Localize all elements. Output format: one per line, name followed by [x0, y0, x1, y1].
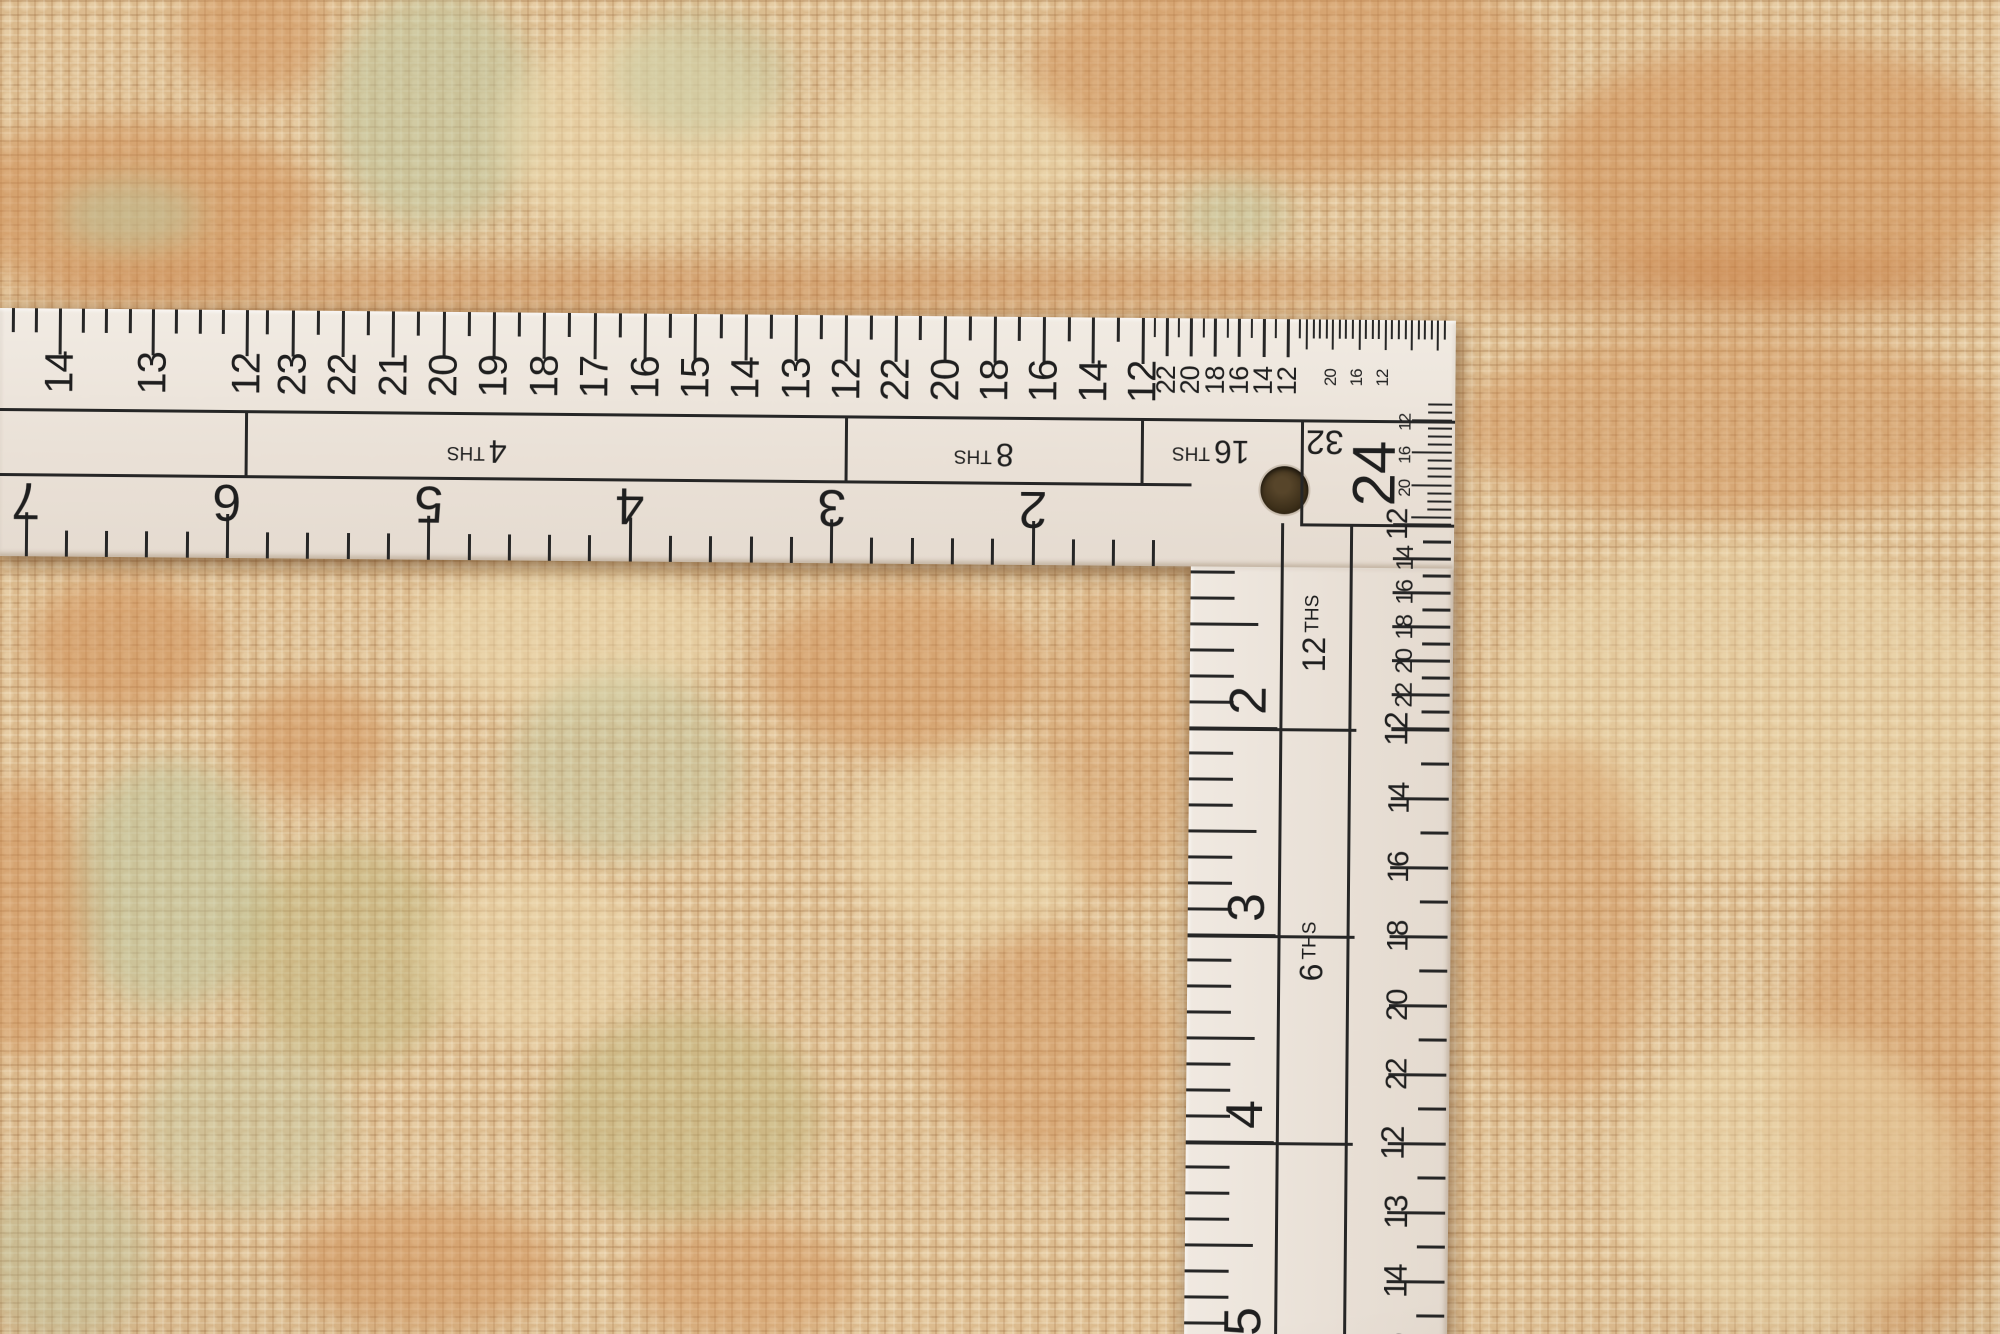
scale-number: 17: [574, 356, 614, 399]
scale-number: 20: [1322, 369, 1339, 386]
ruler-tick: [1412, 452, 1452, 454]
ruler-tick: [1428, 428, 1452, 430]
ruler-tick: [1428, 468, 1452, 470]
ruler-tick: [1352, 320, 1354, 339]
section-label-32nds: 32: [1306, 424, 1344, 458]
ruler-tick: [1185, 1218, 1229, 1221]
ruler-tick: [1262, 319, 1265, 357]
ruler-tick: [1072, 539, 1075, 565]
scale-number: 14: [1394, 546, 1418, 571]
ruler-tick: [1428, 403, 1452, 405]
scale-number: 16: [1384, 851, 1414, 883]
scale-number: 20: [423, 354, 463, 397]
scale-number: 20: [1393, 649, 1417, 674]
scale-number: 12: [1374, 370, 1391, 387]
ruler-tick: [1112, 540, 1115, 566]
ruler-tick: [1306, 319, 1308, 349]
ruler-tick: [316, 311, 319, 335]
ruler-tick: [568, 313, 571, 337]
ruler-tick: [1420, 900, 1448, 903]
ruler-tick: [1421, 762, 1449, 765]
ruler-tick: [11, 308, 14, 332]
ruler-tick: [1165, 318, 1168, 356]
ruler-tick: [1339, 320, 1341, 339]
scale-number: 22: [876, 358, 916, 401]
ruler-tick: [790, 537, 793, 563]
ruler-tick: [1190, 674, 1234, 677]
ruler-tick: [442, 312, 445, 358]
ruler-tick: [1186, 1062, 1230, 1065]
ruler-tick: [417, 312, 420, 336]
ruler-tick: [1092, 318, 1095, 364]
ruler-tick: [1391, 320, 1393, 339]
ruler-tick: [1412, 419, 1452, 421]
unit-number: 4: [616, 479, 644, 531]
ruler-tick: [1226, 319, 1228, 338]
ruler-tick: [1428, 412, 1452, 414]
ruler-tick: [820, 315, 823, 339]
ruler-tick: [1422, 711, 1450, 714]
unit-number: 2: [1019, 483, 1047, 535]
ruler-tick: [1187, 1036, 1255, 1040]
unit-number: 5: [415, 478, 443, 530]
ruler-tick: [1424, 320, 1426, 339]
ruler-tick: [1067, 317, 1070, 341]
ruler-tick: [1365, 320, 1367, 339]
ruler-tick: [1427, 492, 1451, 494]
scale-number: 13: [776, 358, 816, 401]
ruler-tick: [1427, 500, 1451, 502]
ruler-tick: [619, 313, 622, 337]
section-label-8ths: 8THS: [954, 438, 1014, 471]
ruler-tick: [1428, 460, 1452, 462]
ruler-tick: [951, 538, 954, 564]
ruler-tick: [105, 309, 108, 333]
scale-number: 18: [524, 355, 564, 398]
ruler-tick: [1214, 319, 1217, 357]
ruler-tick: [1427, 508, 1451, 510]
ruler-tick: [35, 308, 38, 332]
ruler-tick: [588, 535, 591, 561]
ruler-tick: [1117, 318, 1120, 342]
section-label-12ths: 12THS: [1298, 595, 1331, 673]
l-square-scale-ruler: 4THS 8THS 16THS 32 12THS 6THS 24 1413122…: [0, 0, 2000, 1334]
ruler-tick: [1189, 778, 1233, 781]
ruler-tick: [870, 538, 873, 564]
ruler-tick: [266, 532, 269, 558]
ruler-tick: [1398, 320, 1400, 339]
ruler-tick: [1141, 318, 1144, 364]
ruler-tick: [1312, 319, 1314, 338]
ruler-tick: [1428, 436, 1452, 438]
ruler-tick: [1412, 484, 1452, 486]
ruler-tick: [347, 533, 350, 559]
ruler-tick: [669, 314, 672, 338]
ruler-tick: [151, 309, 154, 355]
scale-number: 13: [1380, 1195, 1412, 1229]
ruler-tick: [1275, 319, 1277, 338]
scale-number: 12: [1396, 414, 1413, 431]
ruler-tick: [1319, 320, 1321, 339]
ruler-tick: [694, 314, 697, 360]
ruler-tick: [1437, 321, 1439, 351]
ruler-tick: [845, 315, 848, 361]
ruler-tick: [1202, 318, 1204, 337]
ruler-tick: [145, 531, 148, 557]
ruler-tick: [1186, 1088, 1230, 1091]
ruler-tick: [468, 312, 471, 336]
ruler-tick: [1191, 597, 1235, 600]
ruler-tick: [222, 310, 225, 334]
ruler-tick: [81, 309, 84, 333]
ruler-tick: [1188, 881, 1232, 884]
ruler-tick: [175, 310, 178, 334]
ruler-tick: [245, 310, 248, 356]
ruler-tick: [467, 534, 470, 560]
ruler-tick: [709, 536, 712, 562]
ruler-tick: [1185, 1243, 1253, 1247]
scale-number: 15: [675, 357, 715, 400]
ruler-tick: [1286, 319, 1289, 357]
ruler-tick: [1417, 1245, 1445, 1248]
section-label-16ths: 16THS: [1172, 435, 1250, 468]
ruler-tick: [1345, 320, 1347, 339]
ruler-tick: [392, 311, 395, 357]
ruler-tick: [1423, 540, 1451, 543]
ruler-tick: [1423, 574, 1451, 577]
scale-number: 18: [1383, 920, 1413, 952]
ruler-tick: [1154, 318, 1156, 337]
scale-number: 22: [1382, 1058, 1412, 1090]
ruler-tick: [1444, 321, 1446, 340]
ruler-tick: [518, 313, 521, 337]
ruler-tick: [1417, 1176, 1445, 1179]
ruler-tick: [1411, 320, 1413, 350]
ruler-tick: [58, 309, 61, 355]
scale-number: 12: [226, 353, 266, 396]
ruler-tick: [894, 316, 897, 362]
ruler-tick: [644, 314, 647, 360]
ruler-tick: [1416, 1314, 1444, 1317]
ruler-tick: [910, 538, 913, 564]
ruler-tick: [1189, 804, 1233, 807]
ruler-tick: [1385, 320, 1387, 350]
unit-number: 6: [214, 476, 242, 528]
scale-number: 22: [323, 354, 363, 397]
ruler-tick: [291, 311, 294, 357]
ruler-tick: [1251, 319, 1253, 338]
ruler-tick: [128, 309, 131, 333]
ruler-tick: [593, 313, 596, 359]
ruler-tick: [367, 311, 370, 335]
ruler-line: [844, 415, 848, 480]
ruler-tick: [870, 316, 873, 340]
ruler-tick: [1191, 571, 1235, 574]
ruler-tick: [969, 316, 972, 340]
ruler-tick: [1187, 1011, 1231, 1014]
scale-number: 14: [39, 351, 79, 394]
ruler-tick: [1189, 752, 1233, 755]
ruler-tick: [1420, 831, 1448, 834]
scale-number: 18: [1393, 614, 1417, 639]
ruler-line: [1140, 418, 1144, 483]
ruler-tick: [1190, 648, 1234, 651]
ruler-tick: [991, 539, 994, 565]
ruler-tick: [493, 312, 496, 358]
ruler-tick: [1418, 1107, 1446, 1110]
ruler-tick: [1184, 1295, 1228, 1298]
ruler-tick: [341, 311, 344, 357]
ruler-tick: [1188, 829, 1256, 833]
scale-number: 16: [625, 356, 665, 399]
ruler-tick: [548, 535, 551, 561]
ruler-tick: [105, 531, 108, 557]
scale-number: 14: [1073, 360, 1113, 403]
scale-number: 12: [826, 358, 866, 401]
rug-ruler-photo: 4THS 8THS 16THS 32 12THS 6THS 24 1413122…: [0, 0, 2000, 1334]
scale-number: 12: [1377, 1126, 1409, 1160]
ruler-tick: [1185, 1269, 1229, 1272]
ruler-tick: [1185, 1192, 1229, 1195]
ruler-tick: [1238, 319, 1241, 357]
unit-number: 7: [12, 474, 40, 526]
scale-number: 16: [1393, 580, 1417, 605]
scale-number: 12: [1380, 712, 1412, 746]
ruler-tick: [185, 532, 188, 558]
ruler-tick: [1417, 320, 1419, 339]
ruler-tick: [198, 310, 201, 334]
scale-number: 21: [373, 354, 413, 397]
ruler-tick: [1431, 320, 1433, 339]
ruler-tick: [1190, 318, 1193, 356]
ruler-tick: [1428, 444, 1452, 446]
unit-number: 3: [818, 481, 846, 533]
ruler-tick: [1428, 476, 1452, 478]
ruler-tick: [1422, 642, 1450, 645]
ruler-tick: [1299, 319, 1301, 338]
scale-number: 12: [1274, 367, 1301, 395]
ruler-tick: [1186, 1166, 1230, 1169]
ruler-tick: [744, 314, 747, 360]
ruler-tick: [795, 315, 798, 361]
ruler-tick: [306, 533, 309, 559]
ruler-tick: [1358, 320, 1360, 350]
ruler-tick: [266, 310, 269, 334]
scale-number: 22: [1393, 683, 1417, 708]
ruler-tick: [1404, 320, 1406, 339]
ruler-tick: [1325, 320, 1327, 339]
ruler-tick: [749, 537, 752, 563]
section-label-6ths: 6THS: [1295, 921, 1328, 981]
scale-number: 14: [1385, 782, 1415, 814]
ruler-tick: [993, 317, 996, 363]
ruler-tick: [508, 534, 511, 560]
scale-number: 19: [474, 355, 514, 398]
ruler-tick: [1190, 622, 1258, 626]
unit-number: 2: [1222, 687, 1274, 715]
ruler-tick: [1419, 1038, 1447, 1041]
ruler-tick: [1422, 608, 1450, 611]
scale-number: 23: [272, 353, 312, 396]
scale-number: 14: [725, 357, 765, 400]
unit-number: 4: [1219, 1101, 1271, 1129]
ruler-tick: [669, 536, 672, 562]
scale-number: 20: [1383, 989, 1413, 1021]
scale-number: 16: [1024, 360, 1064, 403]
ruler-tick: [1371, 320, 1373, 339]
scale-number: 12: [1383, 508, 1413, 540]
ruler-tick: [1378, 320, 1380, 339]
ruler-tick: [1187, 985, 1231, 988]
scale-number: 16: [1396, 447, 1413, 464]
ruler-tick: [543, 313, 546, 359]
ruler-tick: [944, 316, 947, 362]
ruler-tick: [1419, 969, 1447, 972]
ruler-tick: [1152, 540, 1155, 566]
ruler-tick: [1422, 677, 1450, 680]
ruler-tick: [1187, 959, 1231, 962]
scale-number: 20: [925, 359, 965, 402]
ruler-tick: [1411, 516, 1451, 518]
ruler-tick: [1332, 320, 1334, 350]
ruler-tick: [387, 533, 390, 559]
unit-number: 3: [1221, 894, 1273, 922]
ruler-tick: [1018, 317, 1021, 341]
scale-number: 20: [1396, 480, 1413, 497]
scale-number: 16: [1348, 369, 1365, 386]
ruler-tick: [719, 314, 722, 338]
section-label-4ths: 4THS: [447, 435, 507, 468]
scale-number: 18: [974, 359, 1014, 402]
ruler-tick: [919, 316, 922, 340]
unit-number: 5: [1217, 1308, 1269, 1334]
ruler-tick: [1188, 855, 1232, 858]
scale-number: 13: [132, 352, 172, 395]
ruler-tick: [1178, 318, 1180, 337]
scale-number: 14: [1379, 1264, 1411, 1298]
ruler-tick: [65, 531, 68, 557]
ruler-line: [244, 410, 248, 475]
ruler-tick: [1042, 317, 1045, 363]
ruler-tick: [770, 315, 773, 339]
